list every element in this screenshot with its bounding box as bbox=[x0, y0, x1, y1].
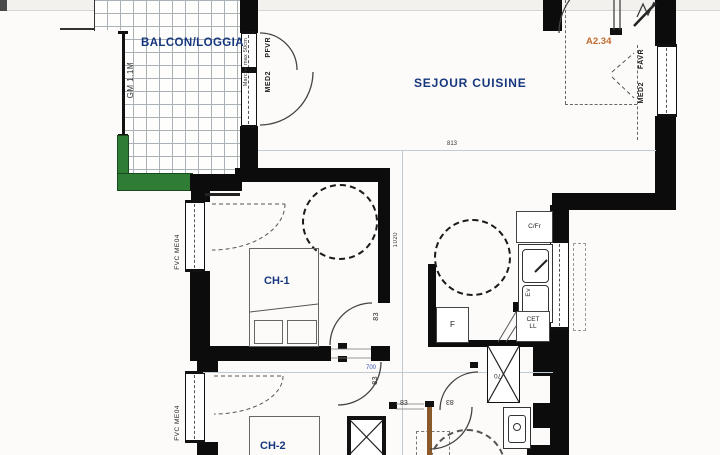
wall-ch1-bottom bbox=[203, 346, 331, 361]
entry-window-label-favr: FAVR bbox=[638, 49, 645, 69]
door-jamb bbox=[389, 402, 397, 409]
wall-entry-stub bbox=[543, 0, 562, 31]
door-width-wc: 83 bbox=[446, 398, 454, 405]
bed-ch1-pillow-right bbox=[287, 320, 317, 344]
dimension-label-813: 813 bbox=[447, 141, 457, 147]
wall-ch1-left-bottom bbox=[190, 271, 210, 361]
vent-opening-dash-top bbox=[612, 53, 634, 72]
exterior-line-v bbox=[94, 0, 95, 31]
ch1-door-arc bbox=[330, 303, 372, 345]
turning-circle-kitchen bbox=[434, 219, 511, 296]
guardrail-cap-top bbox=[118, 31, 128, 34]
entry-window bbox=[657, 44, 677, 117]
wall-ch1-left-top bbox=[191, 180, 210, 202]
bath-door-leaf bbox=[427, 404, 432, 455]
balcony-door-label-med2: MED2 bbox=[265, 71, 272, 92]
bed-ch1-pillow-left bbox=[254, 320, 283, 344]
door-jamb bbox=[425, 401, 434, 407]
washbasin-drain bbox=[513, 423, 521, 431]
shower-dashed-rect bbox=[416, 431, 450, 455]
water-heater-box: CET LL bbox=[516, 311, 550, 342]
balcony-door-label-pfvr: PFVR bbox=[265, 37, 272, 58]
shaft-width-label: 70 bbox=[494, 372, 501, 379]
oven-box: F bbox=[436, 307, 469, 343]
unit-number-label: A2.34 bbox=[586, 36, 611, 47]
door-jamb bbox=[338, 343, 347, 349]
entry-zone-dash-bottom bbox=[565, 104, 637, 105]
window-dash bbox=[194, 375, 195, 439]
wall-ch1-top-thin bbox=[205, 193, 240, 196]
placard-arc-ch2 bbox=[214, 376, 283, 414]
exterior-line-h bbox=[60, 28, 95, 30]
entry-door-hinge bbox=[610, 28, 622, 35]
wall-balcony-divider-top bbox=[240, 0, 258, 33]
wall-wc-wedge2 bbox=[533, 403, 550, 428]
guardrail-label: GM 1.1M bbox=[127, 62, 135, 98]
room-label-ch2: CH-2 bbox=[260, 440, 286, 452]
window-dash bbox=[194, 204, 195, 268]
ch2-window-label: FVC ME04 bbox=[175, 405, 182, 441]
shaft-box-bottom bbox=[347, 416, 386, 455]
door-width-ch2: 83 bbox=[372, 376, 379, 385]
scan-corner-blot bbox=[0, 0, 7, 11]
ch1-window bbox=[185, 200, 205, 272]
step-note-label: Marche max 50cm bbox=[244, 38, 250, 86]
door-jamb bbox=[338, 356, 347, 362]
vent-opening-dash-bottom bbox=[612, 77, 634, 98]
wall-sejour-ch1-divider bbox=[235, 168, 390, 182]
dimension-line-1020 bbox=[402, 150, 403, 455]
wall-right-top bbox=[655, 0, 676, 46]
dimension-label-700: 700 bbox=[366, 365, 376, 371]
placard-arc-ch1 bbox=[212, 204, 285, 250]
green-wall-horizontal bbox=[117, 173, 193, 191]
wall-kitchen-stub bbox=[428, 264, 436, 347]
window-dash bbox=[666, 48, 667, 113]
entry-zone-dash-left bbox=[565, 0, 566, 104]
window-dash bbox=[559, 244, 560, 326]
entry-window-label-med2: MED2 bbox=[638, 82, 645, 103]
sink-basin-top bbox=[522, 249, 549, 283]
balcony-guardrail bbox=[122, 33, 125, 137]
fridge-box: C/Fr bbox=[516, 211, 553, 243]
ch1-door-opening-lines bbox=[331, 349, 371, 358]
wall-ch1-right bbox=[378, 182, 390, 303]
room-label-living: SEJOUR CUISINE bbox=[414, 76, 527, 90]
oven-label: F bbox=[450, 320, 455, 329]
washing-machine-label: LL bbox=[517, 323, 549, 330]
room-label-balcony: BALCON/LOGGIA bbox=[141, 37, 244, 49]
water-heater-label: CET bbox=[517, 316, 549, 323]
wall-ch1-door-leaf bbox=[371, 346, 390, 361]
wall-step-horizontal bbox=[552, 193, 676, 210]
wall-kitchen-right-lower bbox=[550, 329, 569, 455]
sink-label: Ev bbox=[526, 288, 533, 297]
shaft-box-wc bbox=[487, 345, 520, 403]
door-jamb bbox=[470, 362, 478, 368]
door-width-hall: 83 bbox=[400, 400, 408, 407]
dimension-line-813 bbox=[258, 150, 656, 151]
floor-plan: C/Fr CET LL F bbox=[0, 0, 720, 455]
kitchen-window-sill-dashed bbox=[573, 243, 586, 331]
dimension-label-1020: 1020 bbox=[393, 232, 399, 247]
ch2-window bbox=[185, 371, 205, 443]
room-label-ch1: CH-1 bbox=[264, 275, 290, 287]
door-width-ch1: 83 bbox=[373, 312, 380, 321]
wall-ch2-left-bottom bbox=[197, 442, 218, 455]
dishwasher-hatch bbox=[498, 312, 516, 342]
fridge-label: C/Fr bbox=[528, 223, 541, 230]
ch1-window-label: FVC ME04 bbox=[175, 234, 182, 270]
